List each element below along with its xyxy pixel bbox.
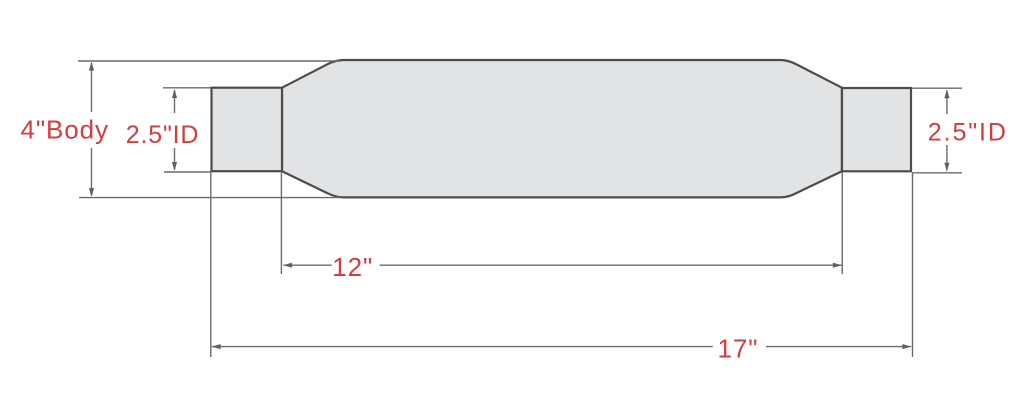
svg-text:2.5"ID: 2.5"ID bbox=[928, 118, 1008, 146]
svg-text:4"Body: 4"Body bbox=[21, 115, 109, 145]
svg-text:12": 12" bbox=[332, 252, 373, 282]
svg-text:2.5"ID: 2.5"ID bbox=[126, 121, 199, 149]
svg-text:17": 17" bbox=[718, 333, 759, 363]
